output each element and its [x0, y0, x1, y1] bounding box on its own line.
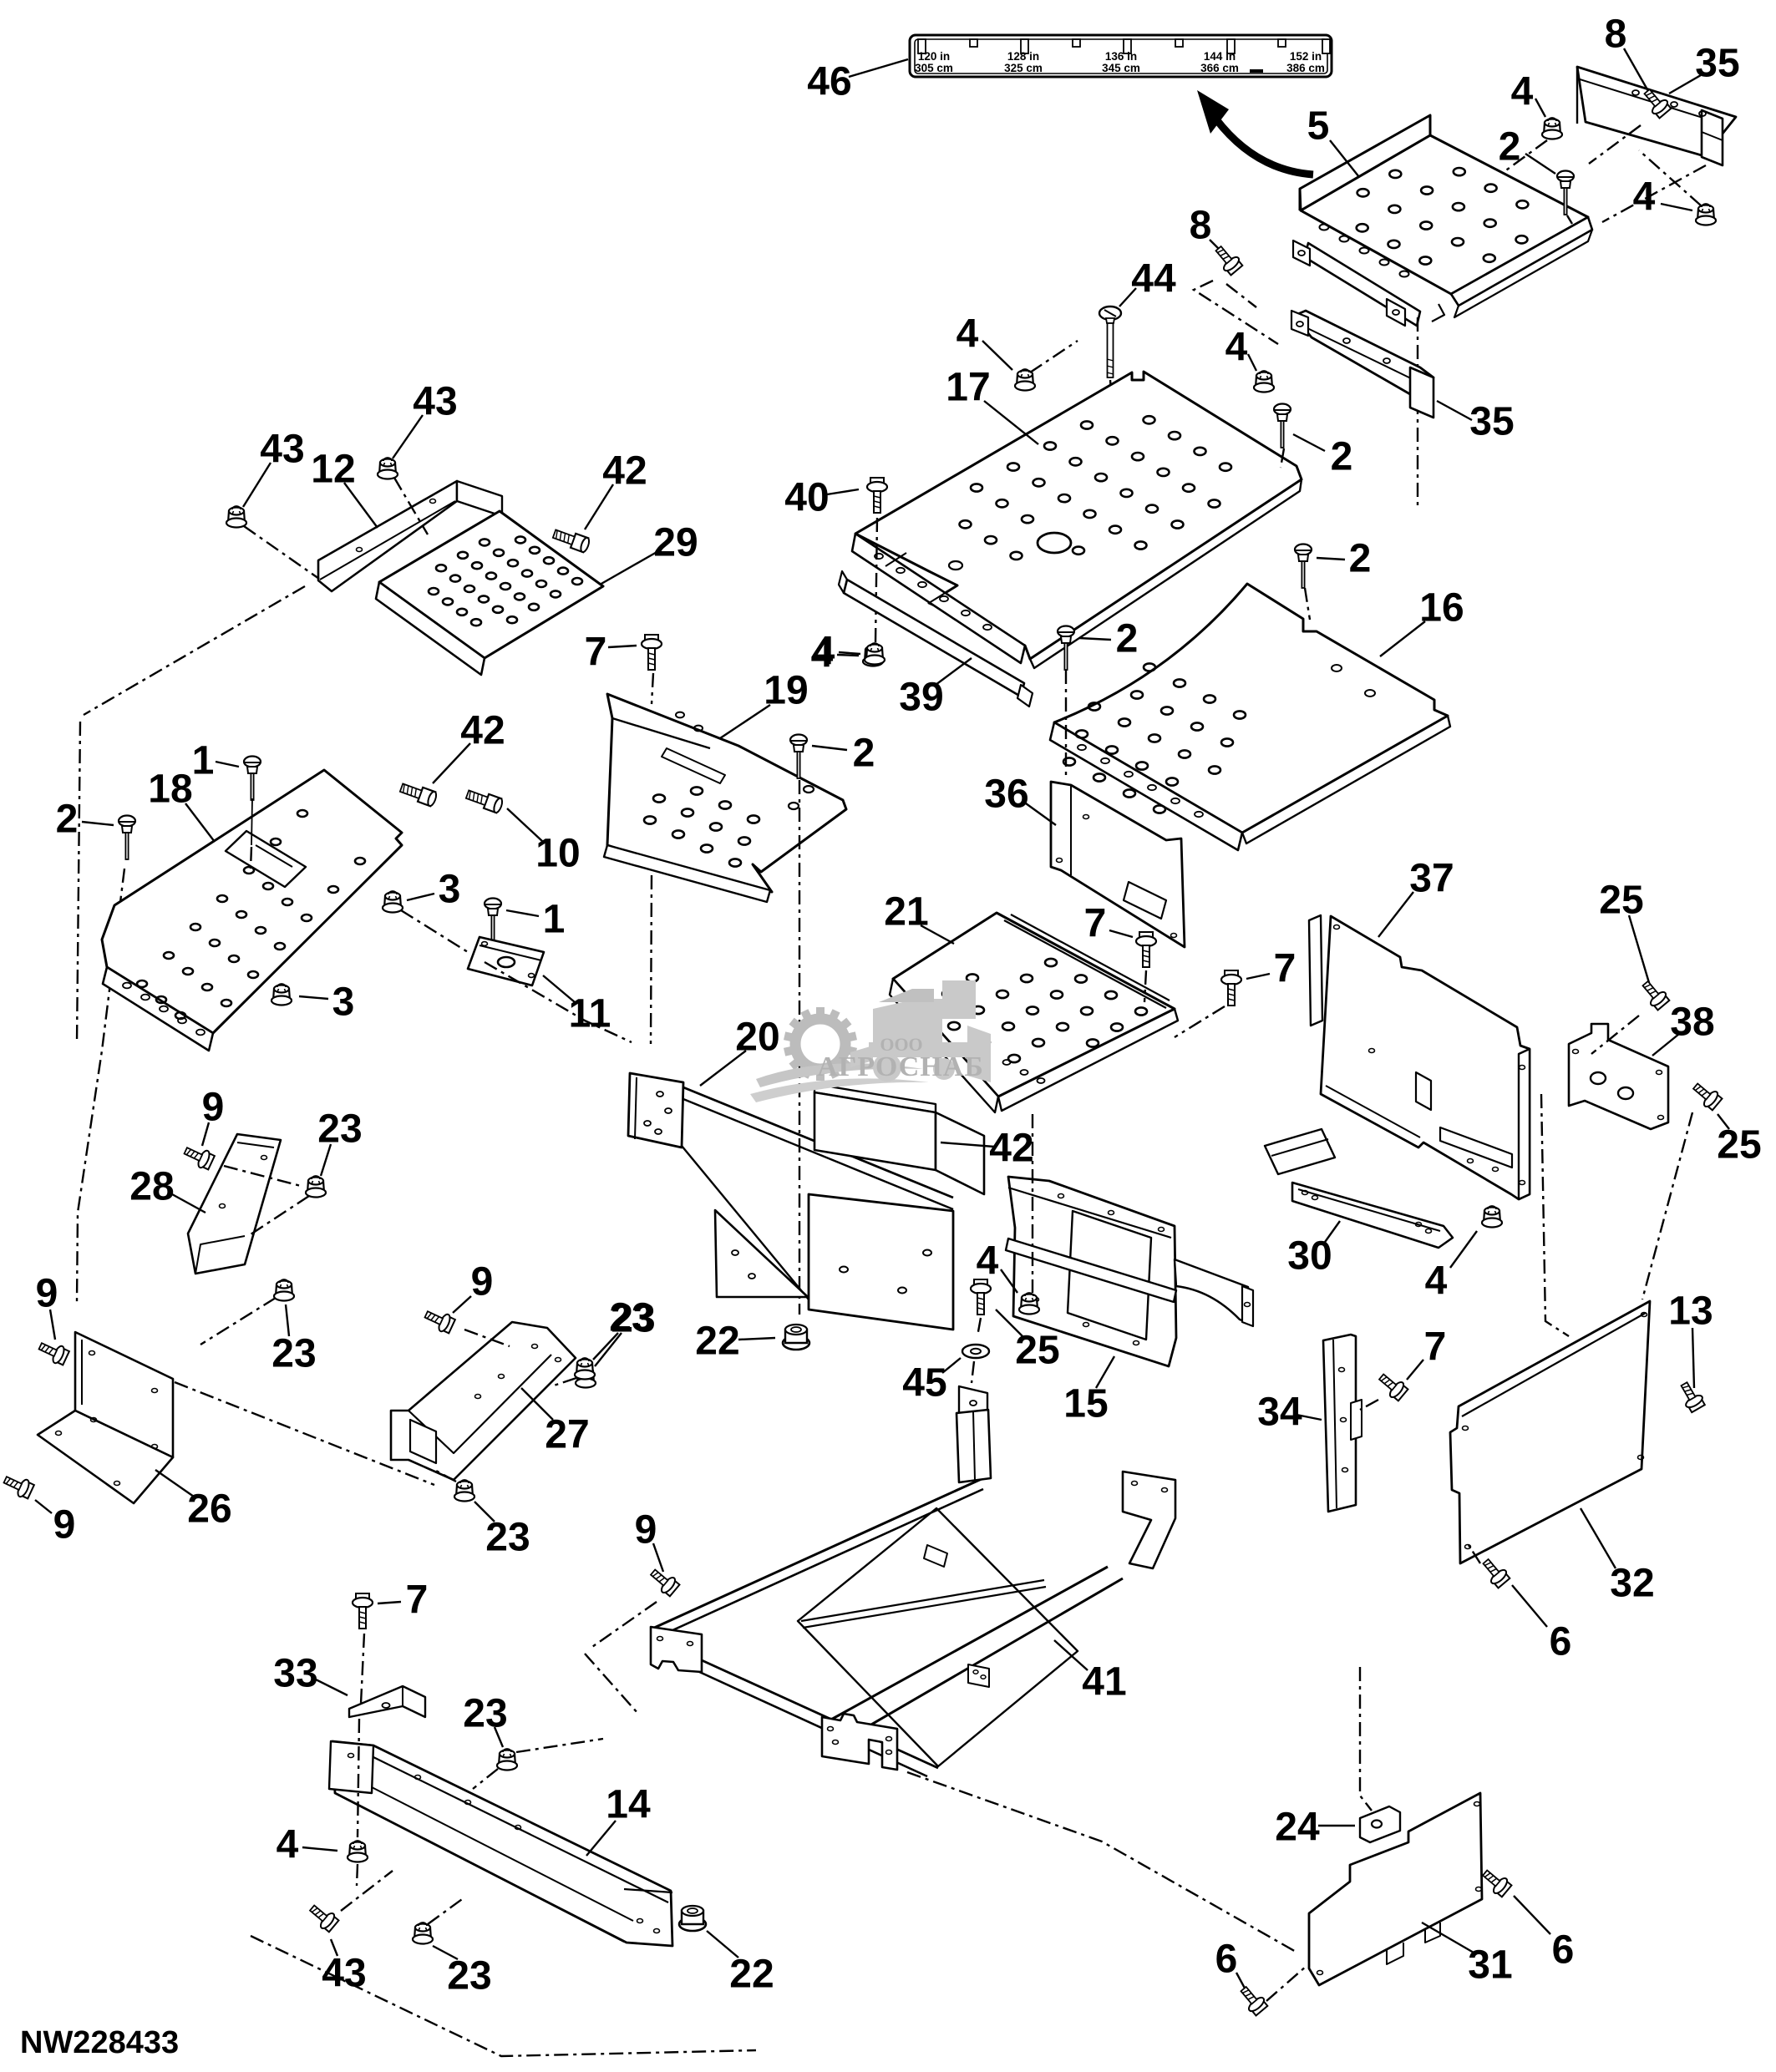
svg-text:4: 4 — [1425, 1259, 1448, 1303]
svg-text:4: 4 — [277, 1822, 299, 1867]
svg-text:8: 8 — [1190, 203, 1212, 247]
svg-text:35: 35 — [1695, 41, 1739, 85]
svg-text:АГРОСНАБ: АГРОСНАБ — [817, 1051, 984, 1082]
svg-text:4: 4 — [977, 1239, 999, 1283]
svg-text:325 cm: 325 cm — [1004, 62, 1043, 74]
svg-text:22: 22 — [729, 1952, 774, 1996]
svg-text:33: 33 — [273, 1651, 317, 1695]
svg-text:2: 2 — [56, 797, 79, 841]
svg-text:43: 43 — [413, 379, 457, 423]
svg-text:2: 2 — [853, 731, 875, 775]
svg-text:23: 23 — [271, 1331, 316, 1375]
svg-text:2: 2 — [1331, 434, 1353, 479]
svg-text:9: 9 — [53, 1502, 76, 1547]
svg-text:23: 23 — [317, 1107, 362, 1151]
svg-text:24: 24 — [1275, 1805, 1320, 1849]
svg-text:23: 23 — [609, 1295, 653, 1340]
svg-text:3: 3 — [332, 980, 355, 1024]
svg-text:305 cm: 305 cm — [915, 62, 953, 74]
svg-text:4: 4 — [813, 629, 835, 673]
svg-text:4: 4 — [957, 312, 979, 356]
svg-text:40: 40 — [784, 475, 829, 519]
svg-text:7: 7 — [585, 630, 607, 674]
svg-text:28: 28 — [129, 1164, 174, 1208]
svg-text:366 cm: 366 cm — [1200, 62, 1239, 74]
svg-text:8: 8 — [1605, 12, 1627, 56]
svg-text:6: 6 — [1550, 1619, 1572, 1664]
svg-text:2: 2 — [1349, 536, 1372, 580]
svg-text:46: 46 — [807, 59, 851, 104]
svg-text:152 in: 152 in — [1290, 50, 1322, 63]
svg-text:386 cm: 386 cm — [1286, 62, 1325, 74]
svg-text:7: 7 — [1084, 901, 1107, 945]
svg-text:345 cm: 345 cm — [1102, 62, 1140, 74]
svg-text:22: 22 — [695, 1319, 739, 1363]
svg-text:7: 7 — [1424, 1325, 1447, 1369]
svg-text:17: 17 — [946, 365, 990, 409]
svg-text:5: 5 — [1307, 104, 1330, 148]
svg-text:9: 9 — [36, 1271, 58, 1315]
svg-text:23: 23 — [447, 1953, 491, 1998]
svg-text:15: 15 — [1063, 1381, 1108, 1426]
svg-text:13: 13 — [1668, 1289, 1713, 1333]
svg-text:35: 35 — [1469, 399, 1514, 443]
svg-text:120 in: 120 in — [918, 50, 950, 63]
svg-text:144 in: 144 in — [1204, 50, 1236, 63]
svg-text:NW228433: NW228433 — [20, 2025, 179, 2060]
svg-text:4: 4 — [1511, 69, 1534, 114]
svg-text:42: 42 — [602, 448, 647, 493]
svg-text:3: 3 — [439, 867, 461, 911]
svg-text:41: 41 — [1082, 1659, 1126, 1704]
svg-text:32: 32 — [1610, 1561, 1654, 1605]
svg-text:7: 7 — [406, 1578, 429, 1622]
svg-text:128 in: 128 in — [1007, 50, 1039, 63]
svg-text:26: 26 — [187, 1487, 231, 1531]
svg-text:4: 4 — [1225, 325, 1248, 369]
svg-text:12: 12 — [311, 447, 355, 491]
svg-text:9: 9 — [202, 1085, 225, 1129]
svg-text:16: 16 — [1419, 585, 1464, 630]
svg-text:44: 44 — [1131, 256, 1176, 301]
svg-text:37: 37 — [1409, 856, 1454, 900]
svg-text:7: 7 — [1274, 946, 1296, 990]
svg-text:4: 4 — [1633, 175, 1656, 219]
svg-text:25: 25 — [1717, 1122, 1761, 1167]
svg-text:6: 6 — [1215, 1937, 1238, 1981]
svg-text:23: 23 — [463, 1691, 507, 1735]
svg-text:1: 1 — [543, 897, 566, 941]
svg-text:23: 23 — [485, 1515, 530, 1559]
svg-text:14: 14 — [606, 1782, 651, 1826]
svg-text:39: 39 — [899, 675, 943, 719]
svg-text:25: 25 — [1599, 878, 1643, 922]
svg-text:42: 42 — [989, 1126, 1033, 1170]
svg-text:19: 19 — [764, 668, 808, 712]
svg-text:2: 2 — [1116, 616, 1139, 661]
svg-text:21: 21 — [884, 889, 928, 934]
svg-text:34: 34 — [1257, 1390, 1302, 1434]
svg-text:6: 6 — [1552, 1928, 1575, 1972]
svg-text:45: 45 — [902, 1360, 946, 1405]
svg-text:43: 43 — [260, 427, 304, 471]
svg-text:36: 36 — [984, 772, 1028, 816]
svg-text:29: 29 — [653, 520, 698, 565]
svg-text:1: 1 — [192, 738, 215, 783]
svg-text:10: 10 — [535, 831, 580, 875]
svg-text:31: 31 — [1468, 1943, 1512, 1987]
svg-text:136 in: 136 in — [1105, 50, 1137, 63]
svg-text:38: 38 — [1670, 1000, 1714, 1044]
svg-text:9: 9 — [471, 1259, 494, 1304]
